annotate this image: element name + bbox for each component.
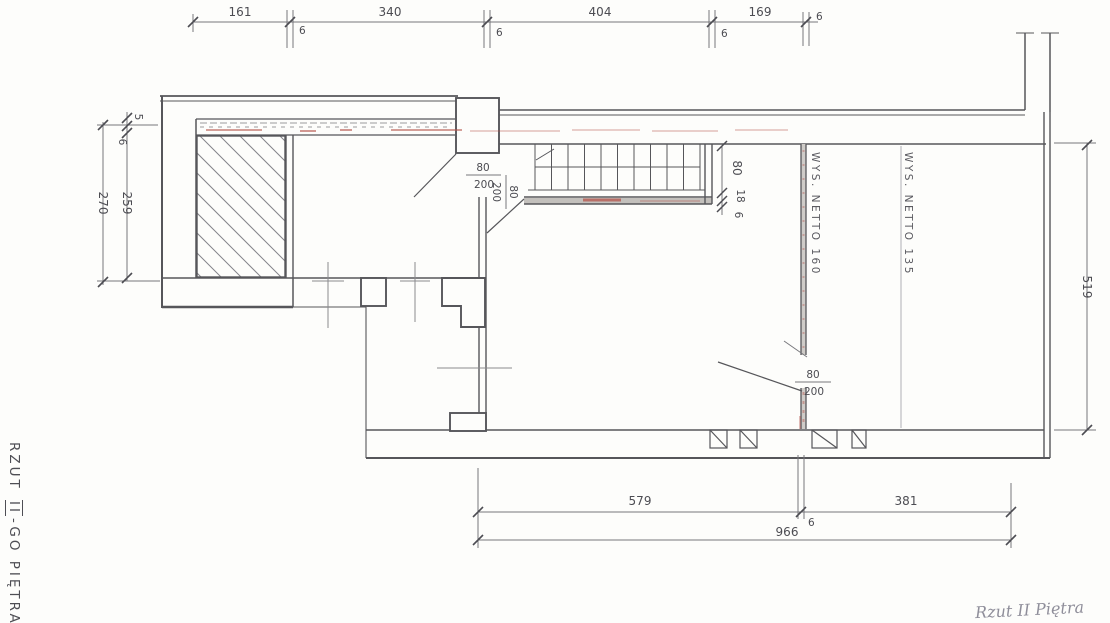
dim-270: 270	[96, 192, 110, 215]
sheet-title-vertical: RZUT II-GO PIĘTRA	[6, 442, 22, 623]
dim-519: 519	[1080, 276, 1094, 299]
dim-6b: 6	[496, 27, 503, 39]
red-accents	[206, 130, 804, 429]
sheet-title-suffix: -GO PIĘTRA	[6, 518, 22, 623]
dim-6-stair: 6	[732, 212, 744, 219]
door-a: 80 200	[414, 154, 501, 197]
dim-966: 966	[776, 525, 799, 539]
knee-wall-insulation-band	[196, 119, 455, 135]
stair-flight	[524, 144, 712, 204]
stair-dimension-labels: 80 18 6	[730, 160, 746, 218]
chimney-pier	[456, 98, 499, 153]
dim-169: 169	[749, 5, 772, 19]
dim-340: 340	[379, 5, 402, 19]
dim-80-stair: 80	[730, 160, 744, 175]
dim-161: 161	[229, 5, 252, 19]
dim-259: 259	[120, 192, 134, 215]
square-pier	[361, 278, 386, 306]
outer-walls	[160, 33, 1059, 458]
sheet-title-prefix: RZUT	[6, 442, 22, 498]
door-b-height: 200	[490, 182, 502, 202]
l-shaped-pier	[442, 278, 485, 327]
hatched-room	[60, 135, 421, 278]
dim-6a: 6	[299, 25, 306, 37]
floor-plan-svg: 161 6 340 6 404 6 169 6 5 6 259 270	[0, 0, 1110, 623]
dim-579: 579	[629, 494, 652, 508]
door-b-width: 80	[507, 185, 519, 198]
wys-netto-135-label: WYS. NETTO 135	[902, 152, 914, 276]
dim-6-left: 6	[116, 139, 128, 146]
door-a-width: 80	[476, 162, 489, 174]
stair-dimension-chain	[717, 141, 727, 215]
sheet-title-numeral: II	[5, 500, 23, 516]
dim-6d: 6	[816, 11, 823, 23]
door-c: 80 200	[718, 341, 831, 398]
bottom-wall-vents	[710, 430, 866, 448]
dim-6c: 6	[721, 28, 728, 40]
dim-18-stair: 18	[734, 189, 746, 202]
bottom-dimension-chain	[473, 455, 1016, 548]
door-b: 80 200	[487, 175, 524, 233]
wys-netto-160-label: WYS. NETTO 160	[809, 152, 821, 276]
bottom-dimension-labels: 579 6 381 966	[629, 494, 918, 539]
dim-5: 5	[132, 114, 144, 121]
dim-404: 404	[589, 5, 612, 19]
door-c-height: 200	[804, 386, 824, 398]
dim-381: 381	[895, 494, 918, 508]
scanned-floor-plan-page: 161 6 340 6 404 6 169 6 5 6 259 270	[0, 0, 1110, 623]
wall-foot-pier	[450, 413, 486, 431]
door-c-width: 80	[806, 369, 819, 381]
dim-6-bottom: 6	[808, 517, 815, 529]
